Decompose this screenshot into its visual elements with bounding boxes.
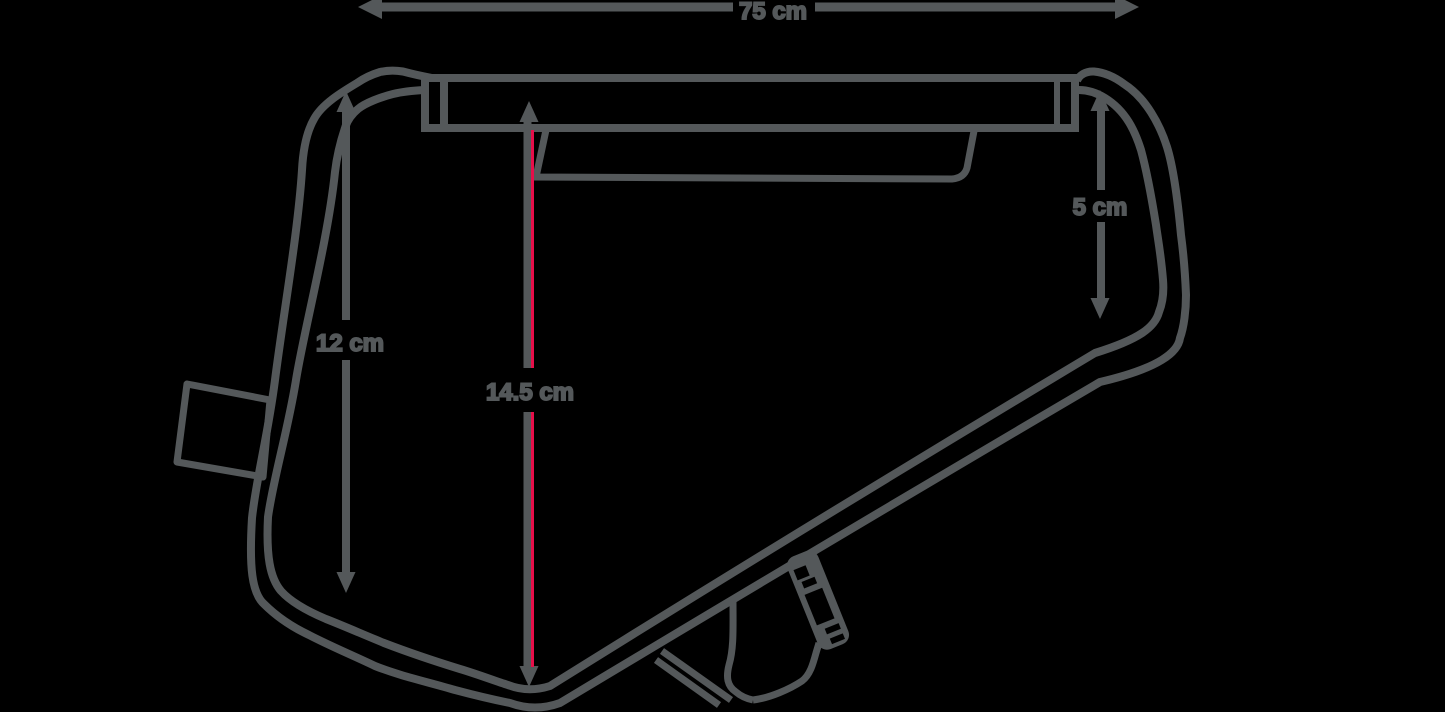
svg-text:75 cm: 75 cm bbox=[739, 0, 807, 25]
svg-text:12 cm: 12 cm bbox=[316, 330, 384, 357]
svg-text:14.5 cm: 14.5 cm bbox=[486, 379, 574, 406]
svg-text:5 cm: 5 cm bbox=[1073, 194, 1128, 221]
